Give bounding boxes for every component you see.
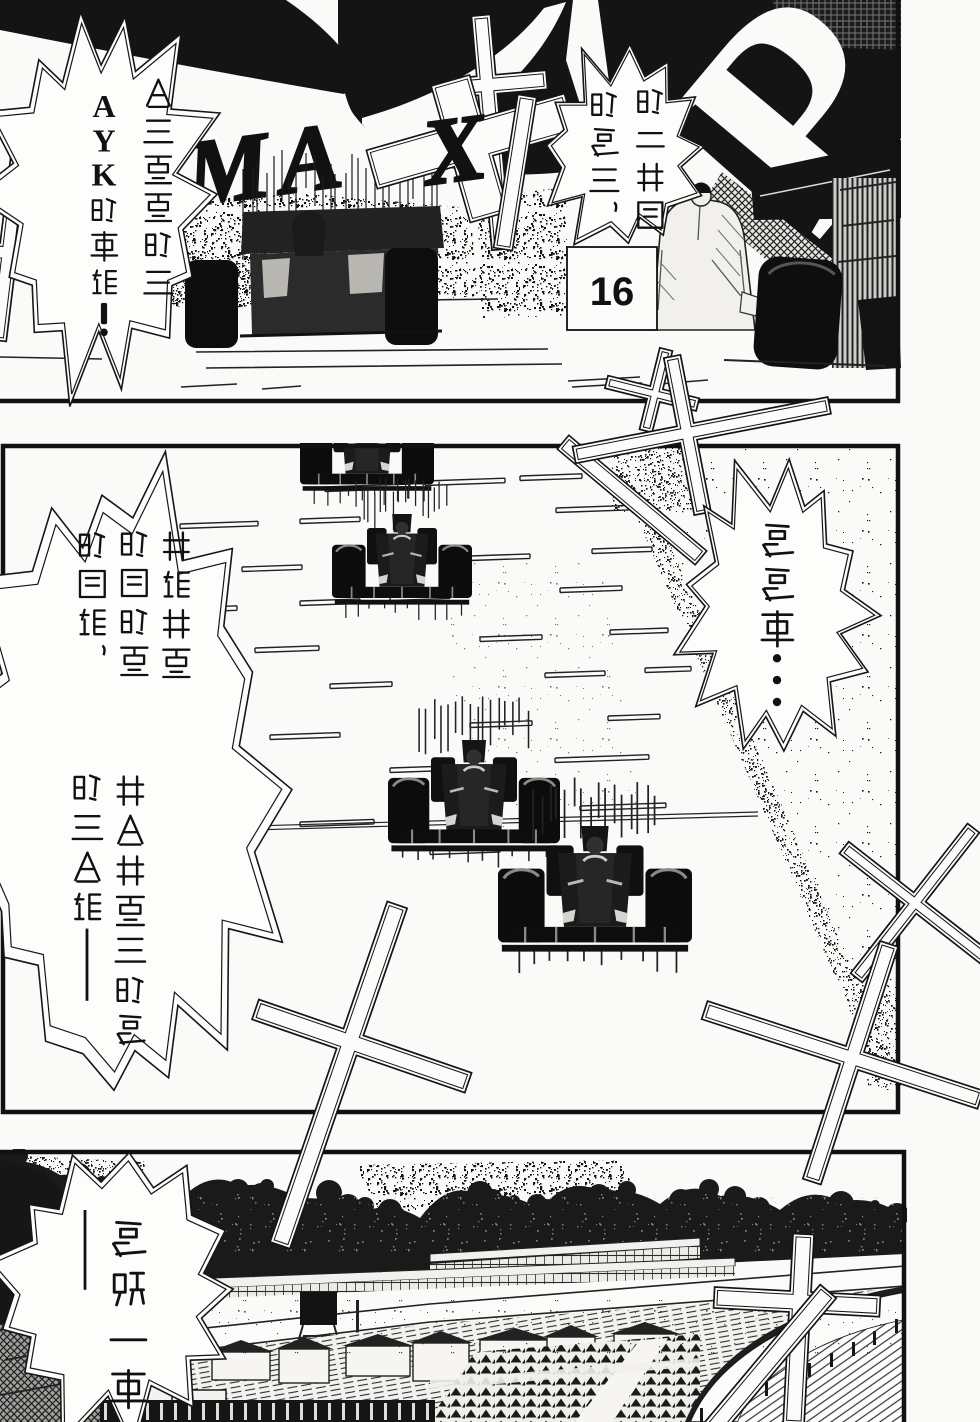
svg-text:A: A xyxy=(92,88,115,124)
svg-text:Y: Y xyxy=(92,122,115,158)
svg-text:16: 16 xyxy=(590,270,635,314)
svg-text:K: K xyxy=(92,157,117,193)
